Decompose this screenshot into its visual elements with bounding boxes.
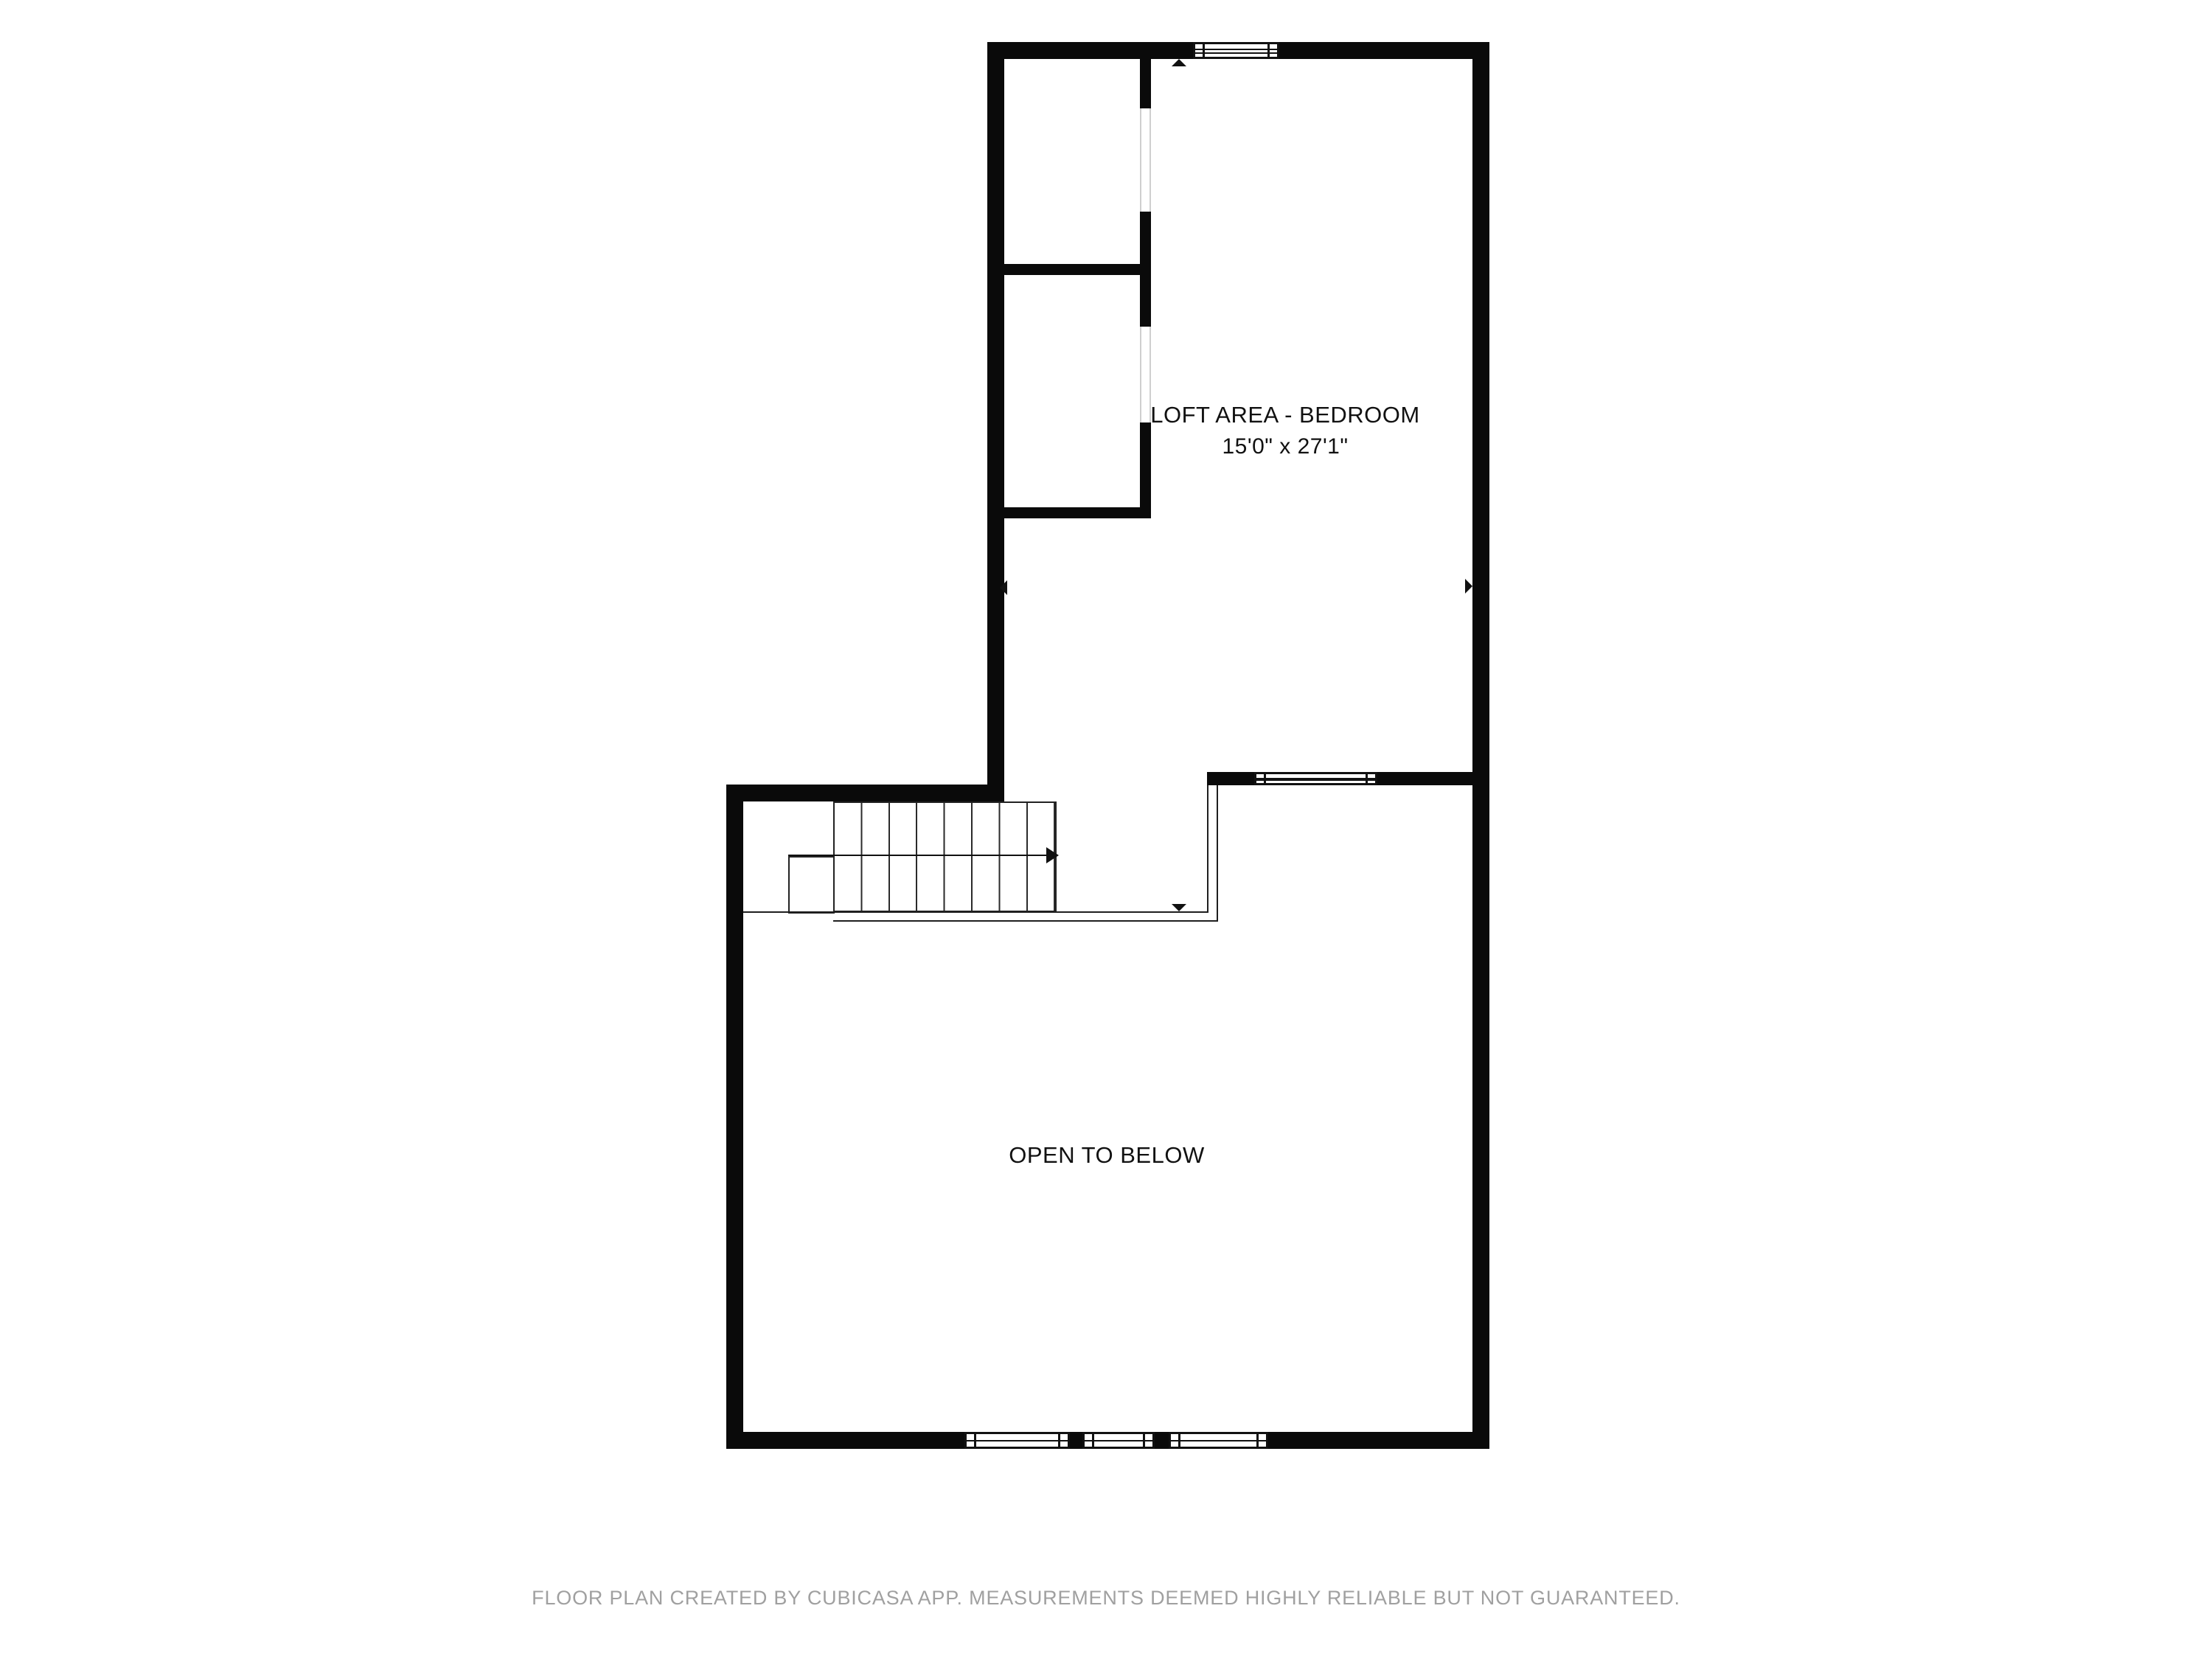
- stair-direction-arrow-icon: [1046, 847, 1059, 863]
- staircase-treads: [833, 801, 1057, 912]
- marker-triangle-left-icon: [1000, 580, 1007, 595]
- closet-bottom-wall: [1004, 507, 1151, 518]
- window-pane-line: [1171, 1440, 1266, 1441]
- marker-triangle-right-icon: [1465, 579, 1472, 594]
- mid-wall-right-segment: [1377, 772, 1489, 785]
- window-pane-line: [1256, 778, 1375, 779]
- bottom-wall-segment-3: [1155, 1432, 1169, 1449]
- room-label-loft: LOFT AREA - BEDROOM 15'0" x 27'1": [1138, 399, 1433, 462]
- bottom-window-a: [964, 1432, 1070, 1449]
- window-jamb: [1267, 44, 1270, 57]
- window-jamb: [1203, 44, 1205, 57]
- room-label-open-to-below: OPEN TO BELOW: [959, 1142, 1254, 1169]
- mid-window: [1254, 772, 1377, 785]
- marker-triangle-down-icon: [1172, 904, 1186, 911]
- bottom-wall-segment-4: [1268, 1432, 1489, 1449]
- top-window: [1193, 42, 1279, 59]
- window-pane-line: [1195, 52, 1277, 54]
- bottom-window-b: [1082, 1432, 1155, 1449]
- marker-triangle-up-icon: [1172, 59, 1186, 66]
- bottom-window-c: [1169, 1432, 1268, 1449]
- stair-walk-line: [788, 855, 1048, 856]
- closet-wall-segment-b: [1140, 212, 1151, 327]
- stairwell-rail-outer: [1217, 785, 1218, 922]
- closet-door-opening-1: [1140, 108, 1151, 212]
- footer-disclaimer: FLOOR PLAN CREATED BY CUBICASA APP. MEAS…: [0, 1587, 2212, 1610]
- top-wall-right-segment: [1279, 42, 1489, 59]
- window-pane-line: [1256, 779, 1375, 781]
- bottom-wall-segment-1: [726, 1432, 964, 1449]
- room-name: LOFT AREA - BEDROOM: [1138, 399, 1433, 431]
- lower-top-wall: [726, 785, 1004, 801]
- stairwell-edge-line-outer: [833, 920, 1218, 922]
- staircase-landing: [788, 856, 835, 914]
- mid-wall-left-stub: [1207, 772, 1254, 785]
- window-pane-line: [1085, 1440, 1152, 1441]
- floor-plan-canvas: LOFT AREA - BEDROOM 15'0" x 27'1" OPEN T…: [0, 0, 2212, 1659]
- stairwell-rail-inner: [1207, 785, 1208, 913]
- lower-left-exterior-wall: [726, 785, 743, 1449]
- bottom-wall-segment-2: [1070, 1432, 1082, 1449]
- closet-divider-wall: [1004, 264, 1140, 275]
- upper-left-exterior-wall: [987, 42, 1004, 801]
- window-pane-line: [1195, 49, 1277, 50]
- right-exterior-wall: [1472, 42, 1489, 1449]
- room-dimensions: 15'0" x 27'1": [1138, 431, 1433, 462]
- stairwell-edge-line-inner: [743, 911, 1208, 913]
- closet-wall-segment-a: [1140, 59, 1151, 108]
- window-pane-line: [967, 1440, 1068, 1441]
- top-wall-left-segment: [987, 42, 1193, 59]
